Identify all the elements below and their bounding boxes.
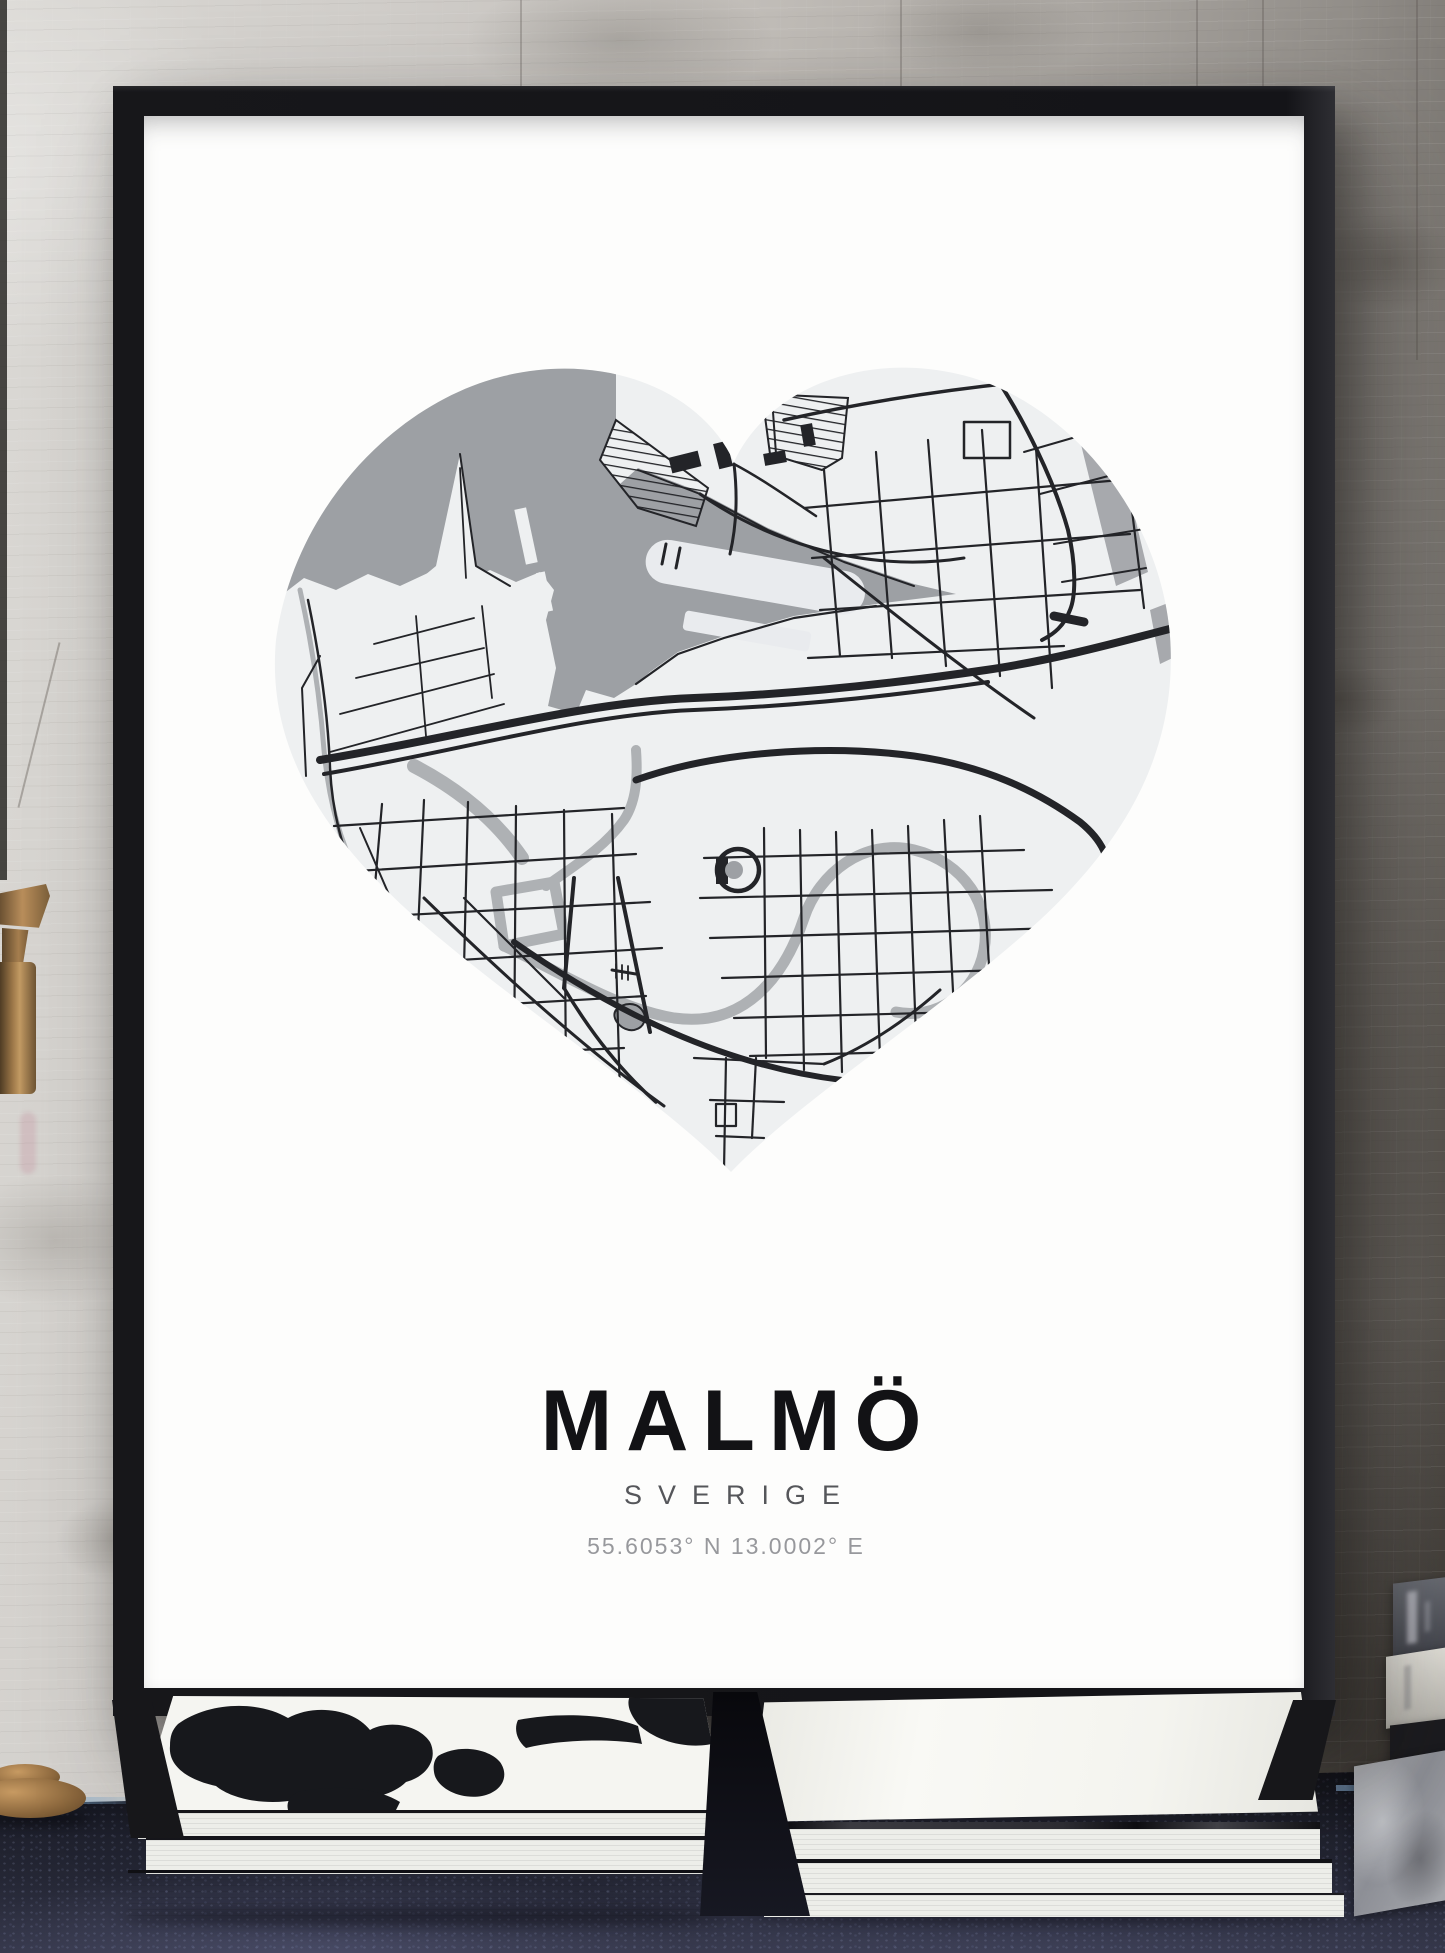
heart-map-svg — [264, 358, 1181, 1173]
poster-frame: MALMÖ SVERIGE 55.6053° N 13.0002° E — [113, 86, 1335, 1716]
wall-book-white — [1386, 1647, 1445, 1729]
wall-seam — [900, 0, 902, 86]
candlestick-foot — [0, 1092, 48, 1134]
heart-map — [264, 358, 1181, 1173]
book-cover-board — [748, 1822, 1320, 1829]
book-stack-left-top-cover — [138, 1696, 724, 1810]
wall-seam — [520, 0, 522, 86]
candlestick — [0, 884, 52, 1146]
photo-scene: MALMÖ SVERIGE 55.6053° N 13.0002° E — [0, 0, 1445, 1953]
candlestick-cap — [0, 884, 50, 930]
map-park-pond — [725, 861, 743, 879]
wall-book-marble — [1354, 1750, 1445, 1917]
wall-edge-shadow — [0, 0, 7, 880]
candlestick-body — [0, 962, 36, 1094]
book-cover-art — [138, 1696, 724, 1810]
book-pages — [146, 1836, 732, 1874]
book-pages — [764, 1893, 1344, 1917]
book-pages — [756, 1859, 1332, 1897]
book-pages — [138, 1810, 722, 1839]
wall-seam — [1416, 0, 1418, 360]
poster-subtitle: SVERIGE — [144, 1482, 1320, 1509]
poster-coordinates: 55.6053° N 13.0002° E — [144, 1535, 1306, 1558]
book-stack-right-top-cover — [750, 1692, 1318, 1822]
candlestick-neck — [2, 928, 32, 964]
book-pages — [128, 1870, 746, 1917]
poster-title: MALMÖ — [144, 1378, 1318, 1464]
poster: MALMÖ SVERIGE 55.6053° N 13.0002° E — [144, 116, 1304, 1688]
book-pages — [748, 1829, 1320, 1859]
